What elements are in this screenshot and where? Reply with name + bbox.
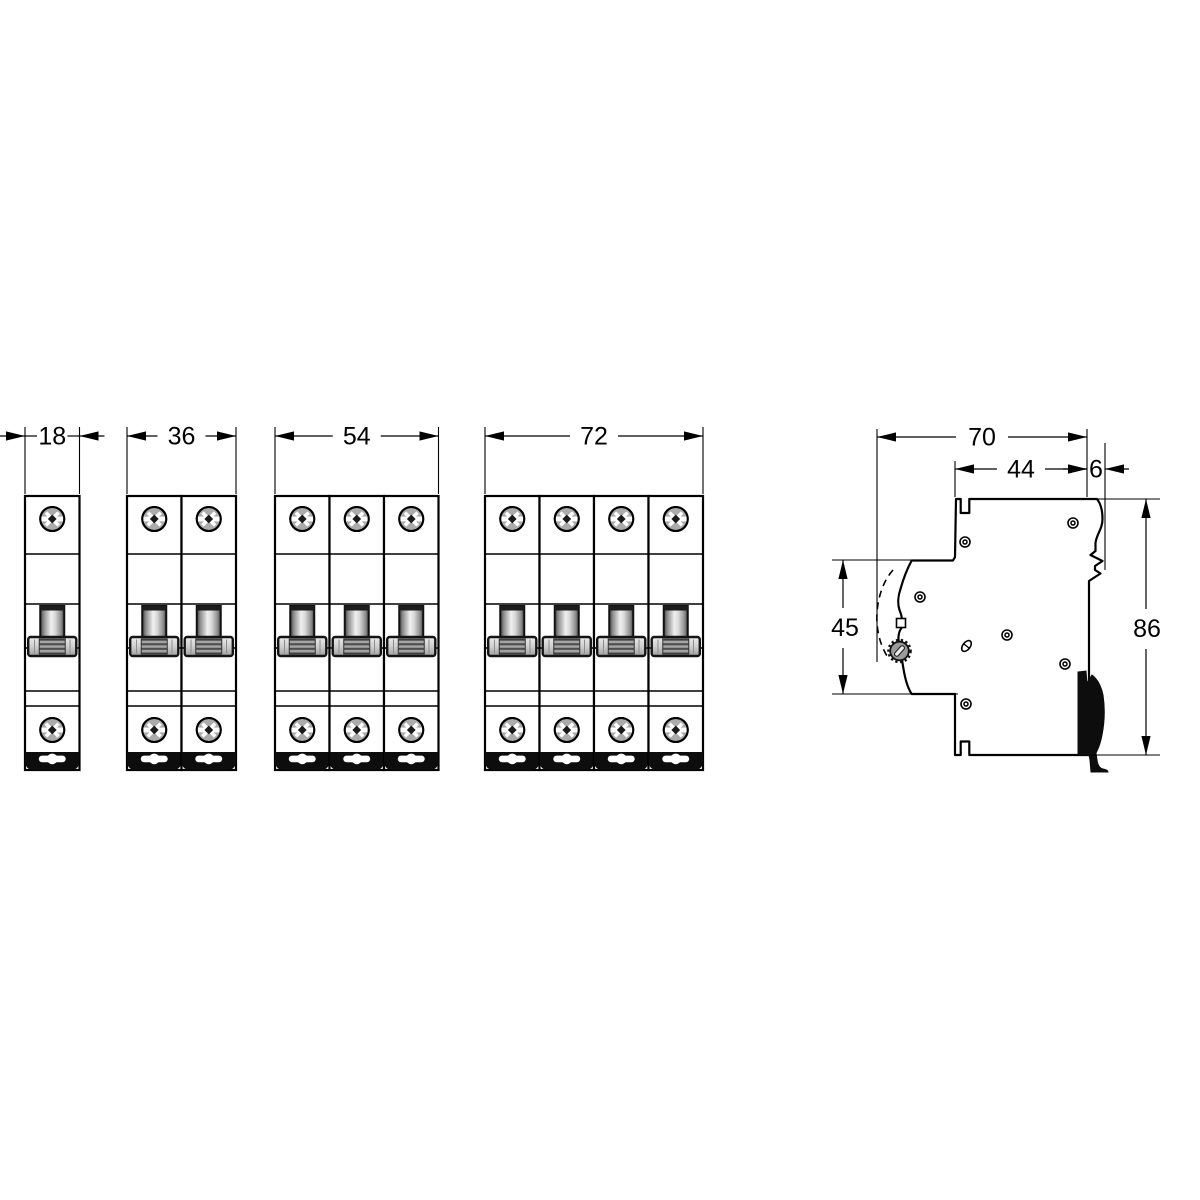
dimension-arrow <box>684 431 703 440</box>
dimension-label: 54 <box>343 423 371 451</box>
dimension-label: 45 <box>831 614 859 642</box>
dimension-label: 44 <box>1007 456 1035 484</box>
dimension-arrow <box>275 431 294 440</box>
dimension-18: 18 <box>0 423 105 451</box>
dimension-arrow <box>838 675 847 694</box>
dimension-arrow <box>6 431 25 440</box>
dimension-arrow <box>127 431 146 440</box>
dimension-arrow <box>1141 736 1150 755</box>
breaker-module <box>540 496 595 770</box>
breaker-module <box>25 496 80 770</box>
technical-drawing-canvas: 18365472 704464586 <box>0 0 1200 1200</box>
side-view-group: 704464586 <box>831 424 1161 773</box>
dimension-arrow <box>1105 464 1124 473</box>
din-rail-clip <box>1078 671 1108 772</box>
front-view-1p: 18 <box>0 423 105 771</box>
dimension-label: 86 <box>1133 615 1161 643</box>
dimension-arrow <box>485 431 504 440</box>
dimension-label: 72 <box>580 423 608 451</box>
front-view-2p: 36 <box>127 423 236 771</box>
dimension-arrow <box>838 560 847 579</box>
dimension-label: 18 <box>38 423 66 451</box>
dimension-72: 72 <box>485 423 703 451</box>
dimension-label: 36 <box>168 423 196 451</box>
dimension-label: 70 <box>968 424 996 452</box>
toggle-pivot-square <box>897 619 906 628</box>
breaker-module <box>594 496 649 770</box>
toggle-travel-arc <box>877 570 893 656</box>
front-view-3p: 54 <box>275 423 439 771</box>
dimension-70: 70 <box>877 424 1087 452</box>
dimension-6: 6 <box>1063 456 1129 484</box>
dimension-arrow <box>80 431 99 440</box>
breaker-module <box>275 496 330 770</box>
breaker-module <box>330 496 385 770</box>
dimension-45: 45 <box>831 560 859 694</box>
dimension-arrow <box>420 431 439 440</box>
dimension-label: 6 <box>1089 456 1103 484</box>
breaker-module <box>485 496 540 770</box>
drawing-svg: 18365472 704464586 <box>0 0 1200 1200</box>
dimension-arrow <box>217 431 236 440</box>
breaker-module <box>127 496 182 770</box>
dimension-arrow <box>877 432 896 441</box>
breaker-module <box>649 496 704 770</box>
side-body-outline <box>898 499 1102 755</box>
dimension-arrow <box>1141 499 1150 518</box>
front-views-group: 18365472 <box>0 423 703 771</box>
dimension-arrow <box>1068 432 1087 441</box>
dimension-36: 36 <box>127 423 236 451</box>
dimension-86: 86 <box>1133 499 1161 755</box>
breaker-module <box>384 496 439 770</box>
breaker-module <box>182 496 237 770</box>
dimension-54: 54 <box>275 423 439 451</box>
front-view-4p: 72 <box>485 423 703 771</box>
dimension-arrow <box>1068 464 1087 473</box>
dimension-arrow <box>955 464 974 473</box>
